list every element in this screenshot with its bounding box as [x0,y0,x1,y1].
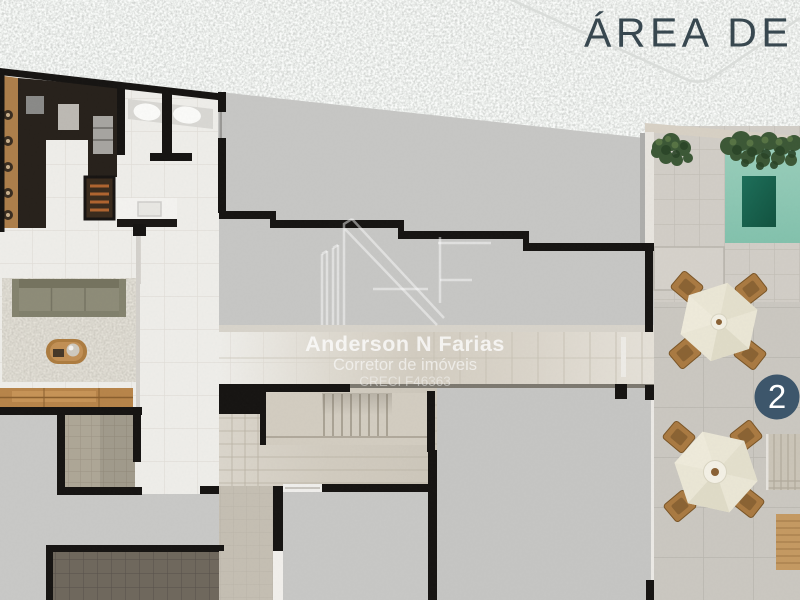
svg-text:2: 2 [768,378,786,415]
